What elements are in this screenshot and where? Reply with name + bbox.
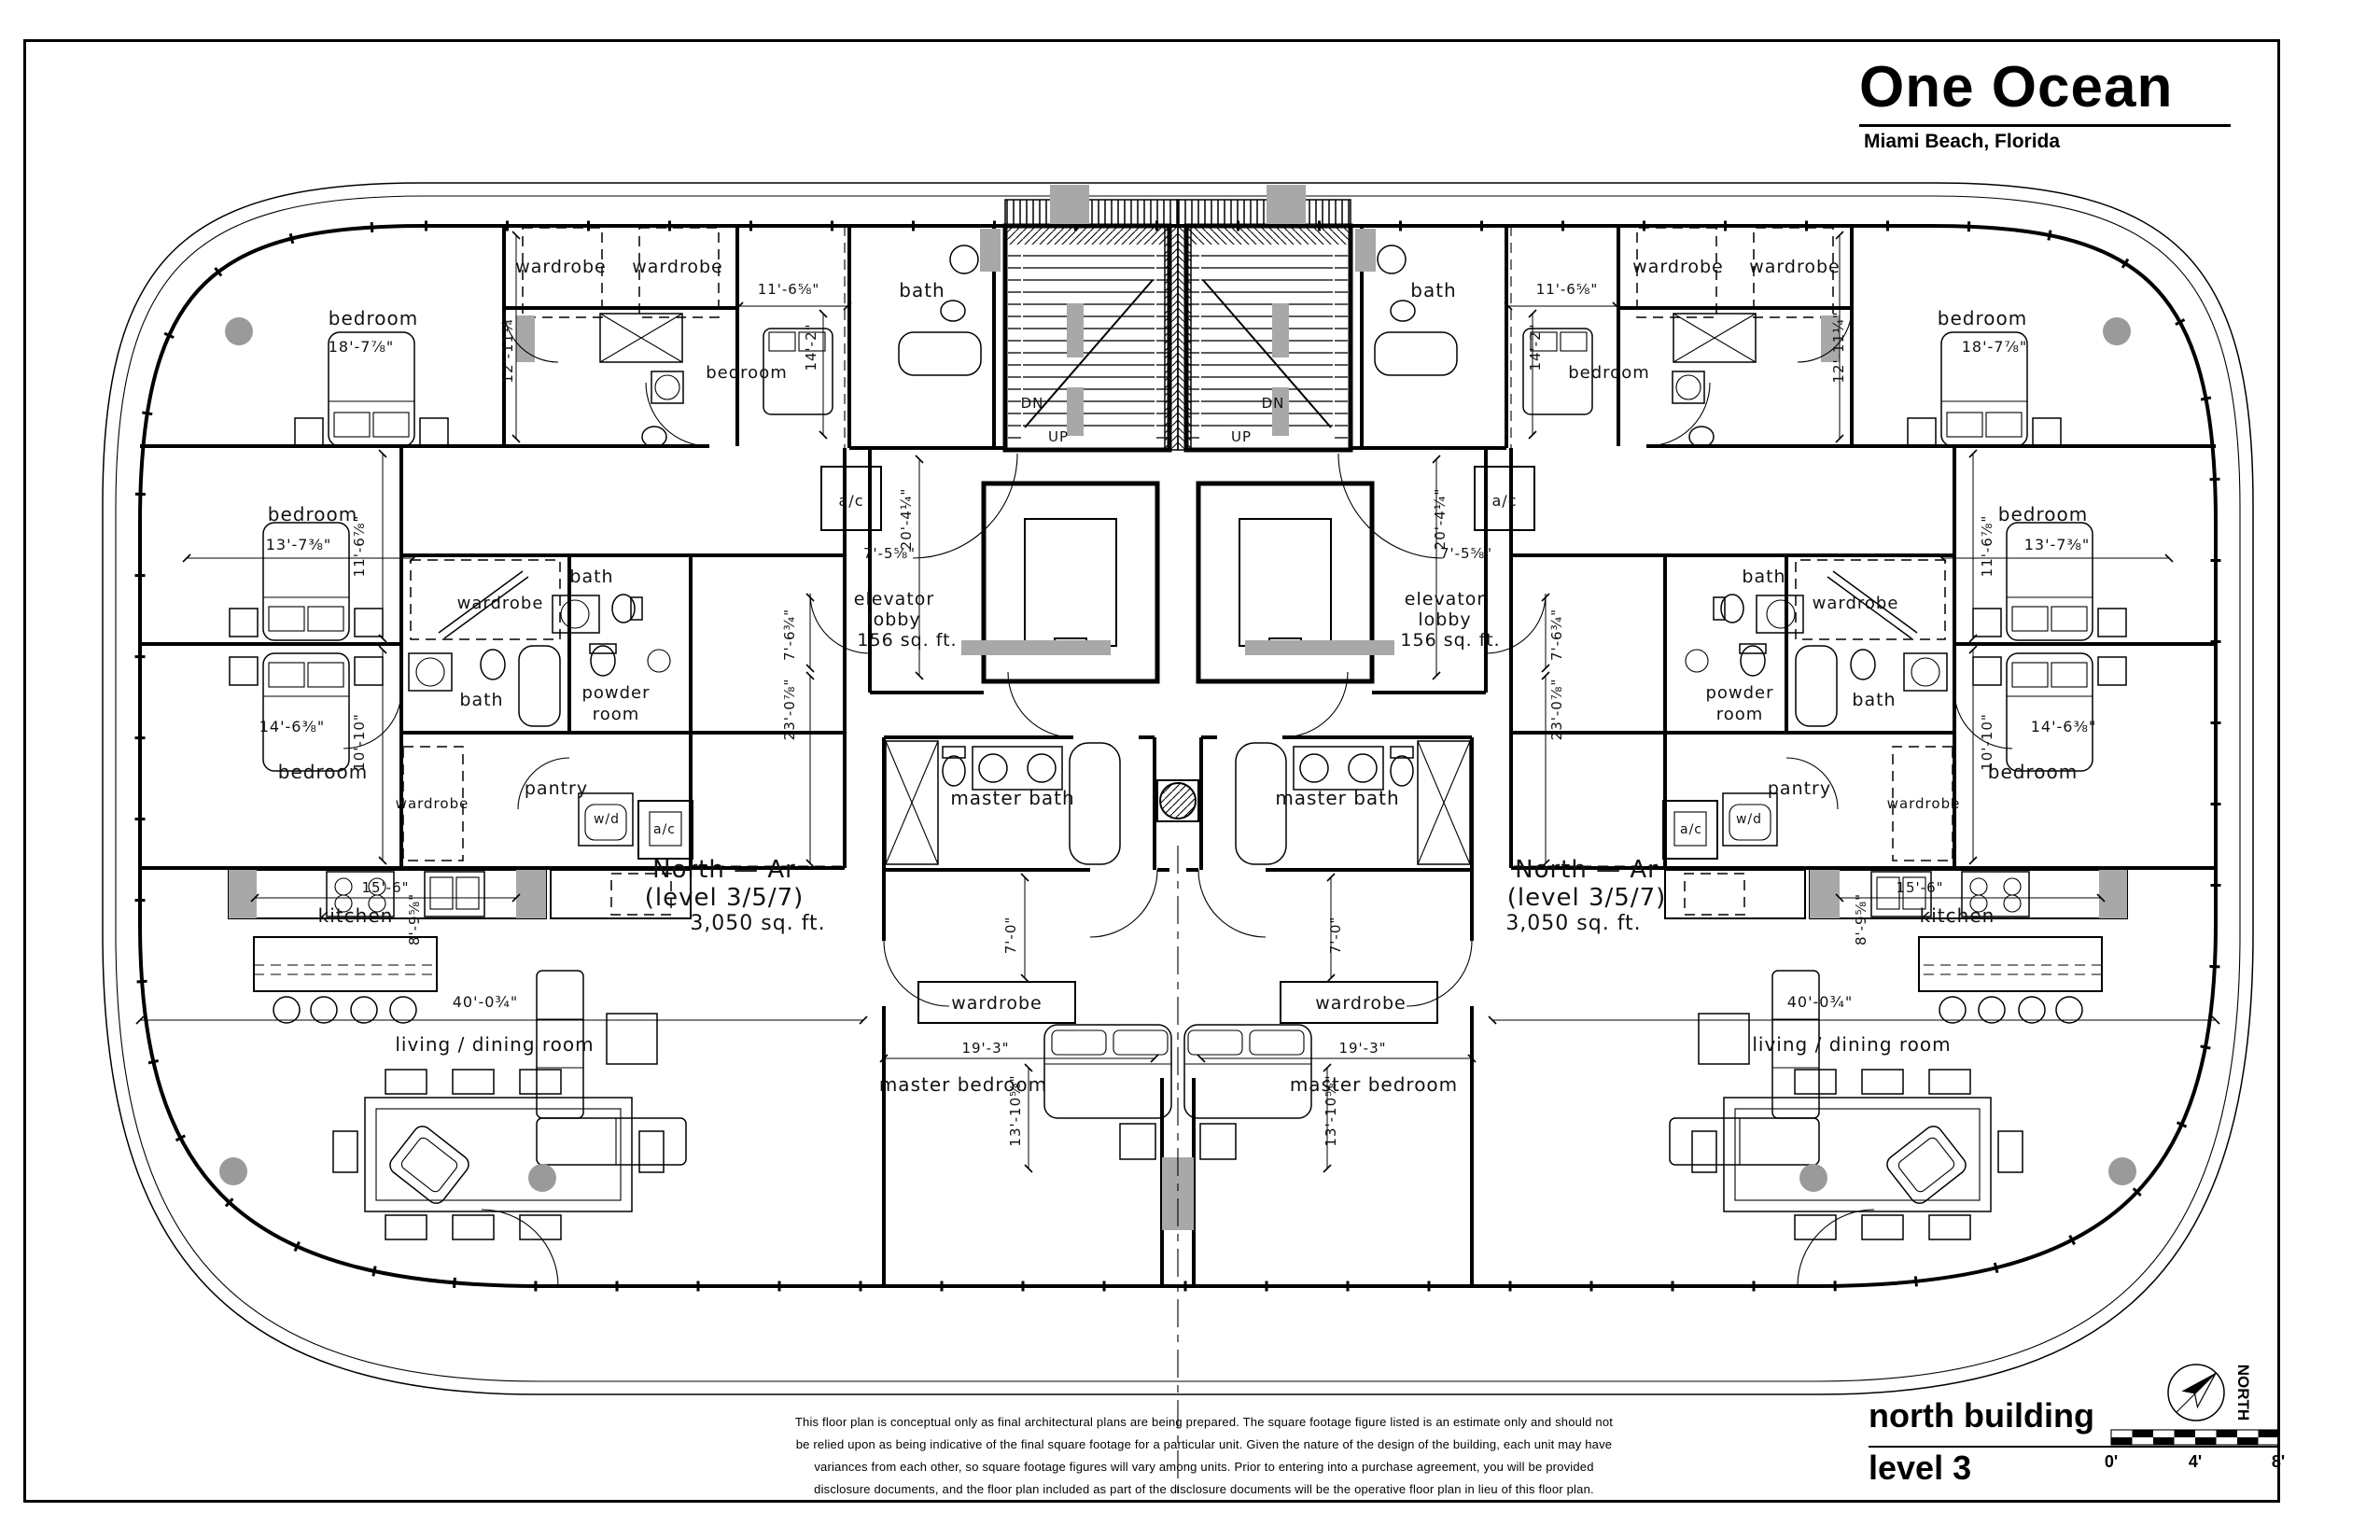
plan-label: 40'-0¾"	[1787, 993, 1854, 1011]
scale-bar: 0' 4' 8'	[2105, 1430, 2285, 1471]
plan-label: (level 3/5/7)	[1507, 884, 1667, 912]
bath-cluster	[403, 560, 693, 861]
plan-label: 14'-2"	[1527, 323, 1544, 371]
plan-label: UP	[1231, 428, 1252, 445]
top-wall-hatch	[1005, 200, 1178, 226]
plan-label: 156 sq. ft.	[857, 630, 957, 651]
plan-label: w/d	[1736, 812, 1762, 827]
scale-tick-0: 0'	[2105, 1452, 2118, 1471]
plan-label: 12'-11¼"	[499, 311, 516, 383]
armchair	[386, 1123, 472, 1207]
plan-label: kitchen	[318, 904, 394, 927]
dining-table	[365, 1098, 632, 1211]
stool	[311, 997, 337, 1023]
plan-label: master bath	[1275, 787, 1399, 809]
plan-label: bath	[1742, 567, 1785, 587]
chair	[453, 1070, 494, 1094]
plan-label: 11'-6⅝"	[758, 281, 820, 298]
plan-label: 11'-6⅞"	[1979, 515, 1995, 578]
plan-label: 20'-4¼"	[898, 488, 915, 551]
plan-label: living / dining room	[1752, 1033, 1951, 1056]
pillow	[1052, 1030, 1106, 1055]
coffee-table	[607, 1014, 657, 1064]
plan-label: 7'-6¾"	[781, 609, 798, 661]
plan-label: 156 sq. ft.	[1400, 630, 1500, 651]
stool	[390, 997, 416, 1023]
plan-label: elevator	[854, 589, 934, 609]
nightstand	[1120, 1124, 1155, 1159]
elevator-car	[1025, 519, 1116, 646]
plan-label: wardrobe	[1315, 993, 1407, 1014]
nightstand	[295, 418, 323, 446]
plan-label: 23'-0⅞"	[781, 679, 798, 741]
plan-label: 13'-10⅝"	[1323, 1074, 1339, 1146]
vanity	[973, 747, 1062, 790]
plan-label: 12'-11¼"	[1830, 311, 1847, 383]
pillow	[769, 332, 795, 351]
sink	[648, 650, 670, 672]
plan-label: wardrobe	[632, 257, 723, 277]
sink	[416, 658, 444, 686]
plan-label: master bath	[950, 787, 1074, 809]
north-arrow-icon: NORTH	[2168, 1365, 2252, 1421]
plan-label: bedroom	[1988, 761, 2078, 783]
disclaimer-text: This floor plan is conceptual only as fi…	[790, 1411, 1618, 1501]
toilet	[481, 650, 505, 679]
plan-label: w/d	[594, 812, 620, 827]
plan-label: 13'-7⅜"	[266, 536, 332, 553]
stair-center-wall	[1165, 226, 1178, 450]
plan-label: 40'-0¾"	[453, 993, 519, 1011]
plan-label: wardrobe	[1887, 795, 1961, 812]
sink	[655, 375, 679, 399]
plan-label: 23'-0⅞"	[1548, 679, 1565, 741]
plan-label: a/c	[653, 822, 676, 837]
plan-label: 11'-6⅞"	[351, 515, 368, 578]
lobby-wall-poche	[961, 640, 1111, 655]
scale-tick-4: 4'	[2189, 1452, 2202, 1471]
plan-label: North — Ar	[1515, 856, 1659, 884]
column	[225, 317, 253, 345]
chair	[453, 1215, 494, 1239]
plan-label: a/c	[839, 492, 864, 510]
chair	[333, 1131, 357, 1172]
plan-label: 18'-7⅞"	[1962, 338, 2028, 356]
column	[219, 1157, 247, 1185]
plan-label: DN	[1262, 395, 1285, 412]
plan-label: room	[1716, 705, 1764, 724]
floorplan-drawing: 0' 4' 8' NORTH bedroom18'-7⅞"12'-11¼"war…	[0, 0, 2380, 1540]
plan-label: 7'-6¾"	[1548, 609, 1565, 661]
chair	[385, 1215, 427, 1239]
north-arrow-label: NORTH	[2234, 1365, 2252, 1421]
sink	[561, 600, 589, 628]
toilet	[943, 756, 965, 786]
plan-label: wardrobe	[1813, 594, 1899, 613]
plan-label: (level 3/5/7)	[645, 884, 805, 912]
sheet-name-divider	[1869, 1446, 2280, 1448]
plan-label: wardrobe	[1749, 257, 1841, 277]
plan-label: powder	[581, 683, 650, 703]
sheet-name-level: level 3	[1869, 1449, 1971, 1488]
plan-label: bath	[459, 690, 503, 710]
pillow	[334, 413, 370, 437]
stool	[273, 997, 300, 1023]
project-title: One Ocean	[1859, 54, 2231, 127]
living-dining	[333, 971, 686, 1239]
plan-label: lobby	[1418, 609, 1471, 630]
plan-label: living / dining room	[395, 1033, 594, 1056]
plan-label: a/c	[1680, 822, 1702, 837]
plan-label: powder	[1705, 683, 1773, 703]
sink	[950, 245, 978, 273]
plan-label: 19'-3"	[1338, 1040, 1386, 1057]
plan-label: 15'-6"	[361, 879, 409, 896]
toilet	[642, 427, 666, 447]
plan-label: 3,050 sq. ft.	[1505, 912, 1641, 935]
bathtub	[519, 646, 560, 726]
plan-label: bedroom	[1938, 307, 2027, 329]
plan-label: North — Ar	[652, 856, 796, 884]
plan-label: pantry	[1768, 778, 1831, 799]
toilet	[941, 301, 965, 321]
plan-label: bedroom	[329, 307, 418, 329]
chair	[639, 1131, 664, 1172]
plan-label: 11'-6⅝"	[1536, 281, 1599, 298]
plan-label: 20'-4¼"	[1432, 488, 1449, 551]
plan-label: lobby	[867, 609, 920, 630]
plan-label: 15'-6"	[1896, 879, 1943, 896]
plan-label: wardrobe	[457, 594, 544, 613]
plan-label: 13'-10⅝"	[1007, 1074, 1024, 1146]
plan-label: wardrobe	[515, 257, 607, 277]
plan-label: room	[593, 705, 640, 724]
plan-label: 18'-7⅞"	[329, 338, 395, 356]
project-location: Miami Beach, Florida	[1864, 131, 2060, 153]
master-bed	[1044, 1025, 1171, 1118]
column	[528, 1164, 556, 1192]
bed	[263, 653, 349, 771]
sink	[979, 754, 1007, 782]
scale-tick-8: 8'	[2272, 1452, 2285, 1471]
plan-label: UP	[1048, 428, 1069, 445]
plan-label: bedroom	[278, 761, 368, 783]
plan-label: wardrobe	[1632, 257, 1724, 277]
plan-label: DN	[1021, 395, 1044, 412]
plan-label: bedroom	[1568, 363, 1650, 383]
floorplan-sheet: 0' 4' 8' NORTH bedroom18'-7⅞"12'-11¼"war…	[0, 0, 2380, 1540]
plan-label: wardrobe	[396, 795, 469, 812]
stair-rail-left	[1008, 245, 1021, 442]
plan-label: elevator	[1405, 589, 1485, 609]
plan-label: 8'-9⅝"	[406, 893, 423, 945]
sheet-name-building: north building	[1869, 1396, 2094, 1435]
plan-label: bath	[1410, 279, 1456, 301]
plan-label: pantry	[525, 778, 588, 799]
sink	[1028, 754, 1056, 782]
dim-lines-core	[884, 459, 1155, 1169]
plan-label: kitchen	[1920, 904, 1995, 927]
plan-label: 14'-6⅜"	[2031, 718, 2097, 735]
chute-shaft	[1162, 1157, 1178, 1230]
kitchen-sink	[425, 872, 484, 917]
plan-label: a/c	[1492, 492, 1518, 510]
toilet	[591, 646, 615, 676]
plan-label: bedroom	[268, 503, 357, 525]
plan-label: 14'-6⅜"	[259, 718, 326, 735]
bathtub	[899, 332, 981, 375]
plan-label: bath	[899, 279, 945, 301]
plan-label: bath	[569, 567, 613, 587]
plan-label: 7'-0"	[1002, 917, 1019, 955]
chair	[520, 1070, 561, 1094]
plan-label: 8'-9⅝"	[1853, 893, 1869, 945]
unit-boundary	[697, 226, 845, 866]
plan-label: bath	[1852, 690, 1896, 710]
plan-label: 7'-0"	[1327, 917, 1344, 955]
chair	[520, 1215, 561, 1239]
plan-label: 13'-7⅜"	[2024, 536, 2091, 553]
chute	[1160, 783, 1196, 819]
plan-label: bedroom	[706, 363, 788, 383]
plan-label: 19'-3"	[961, 1040, 1009, 1057]
bathtub	[1070, 743, 1120, 864]
plan-label: wardrobe	[951, 993, 1043, 1014]
plan-label: 3,050 sq. ft.	[690, 912, 825, 935]
stair-wall-hatch	[1005, 226, 1169, 245]
plan-label: bedroom	[1998, 503, 2088, 525]
bath-top-mid	[600, 314, 683, 447]
plan-label: 14'-2"	[803, 323, 819, 371]
pillow	[373, 413, 409, 437]
pillow	[1113, 1030, 1168, 1055]
plan-label: master bedroom	[1290, 1073, 1458, 1096]
nightstand	[420, 418, 448, 446]
stool	[351, 997, 377, 1023]
chair	[385, 1070, 427, 1094]
